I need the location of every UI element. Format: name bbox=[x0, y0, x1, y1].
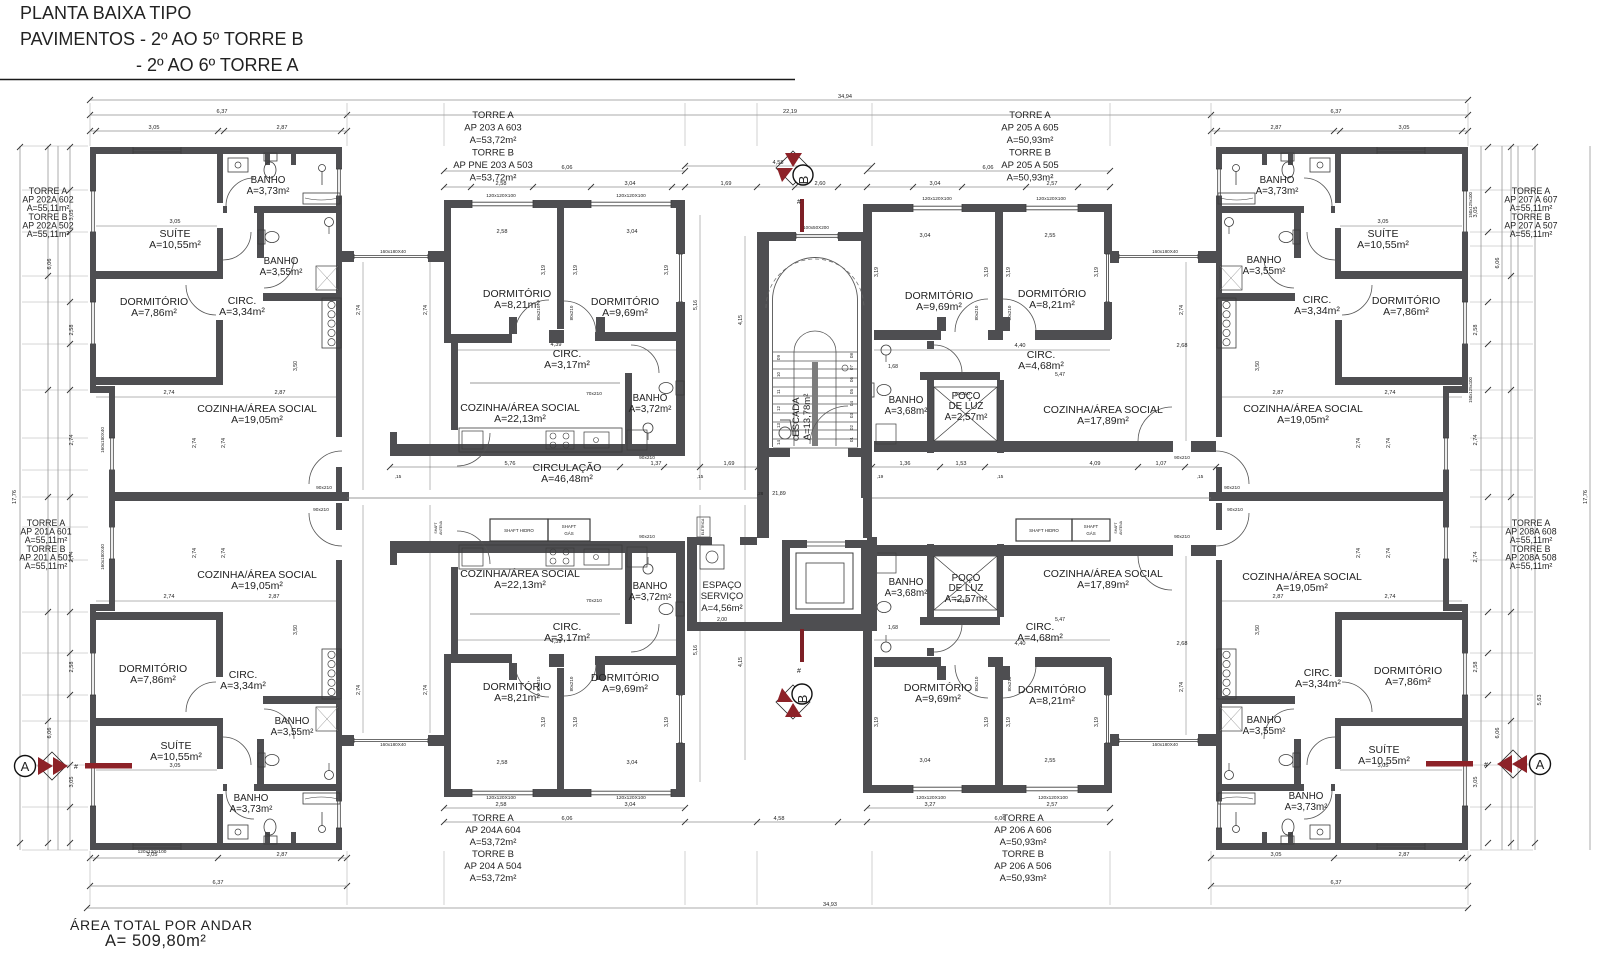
svg-text:3,50: 3,50 bbox=[1255, 625, 1261, 635]
svg-text:90x210: 90x210 bbox=[1227, 507, 1243, 513]
svg-text:2,68: 2,68 bbox=[1177, 343, 1188, 349]
svg-text:3,50: 3,50 bbox=[1255, 361, 1261, 371]
svg-text:A=10,55m²: A=10,55m² bbox=[150, 751, 202, 763]
svg-text:120x120X100: 120x120X100 bbox=[616, 193, 646, 199]
svg-text:6,06: 6,06 bbox=[1495, 258, 1501, 269]
svg-text:A: A bbox=[1536, 757, 1545, 772]
svg-text:2,00: 2,00 bbox=[717, 617, 727, 623]
svg-text:2,55: 2,55 bbox=[1045, 758, 1056, 764]
svg-text:4,09: 4,09 bbox=[1090, 461, 1101, 467]
svg-text:2,58: 2,58 bbox=[496, 802, 507, 808]
svg-text:10: 10 bbox=[776, 372, 781, 377]
svg-text:17,76: 17,76 bbox=[1583, 490, 1589, 504]
svg-text:120x120X100: 120x120X100 bbox=[922, 196, 952, 202]
svg-text:2,87: 2,87 bbox=[1273, 390, 1284, 396]
svg-text:A=9,69m²: A=9,69m² bbox=[602, 683, 648, 695]
svg-text:A=8,21m²: A=8,21m² bbox=[1029, 695, 1075, 707]
svg-text:3,04: 3,04 bbox=[920, 758, 931, 764]
svg-text:A=3,34m²: A=3,34m² bbox=[1294, 305, 1340, 317]
svg-text:#: # bbox=[797, 668, 801, 675]
svg-text:A=53,72m²: A=53,72m² bbox=[470, 837, 517, 848]
svg-text:3,05: 3,05 bbox=[149, 125, 160, 131]
svg-text:5,47: 5,47 bbox=[1055, 617, 1065, 623]
svg-text:2,87: 2,87 bbox=[269, 594, 280, 600]
svg-text:A=55,11m²: A=55,11m² bbox=[1510, 561, 1553, 571]
svg-text:3,19: 3,19 bbox=[1094, 267, 1100, 277]
svg-text:BANHO: BANHO bbox=[234, 793, 269, 804]
svg-text:BANHO: BANHO bbox=[251, 175, 286, 186]
svg-text:2,87: 2,87 bbox=[277, 125, 288, 131]
svg-text:SHAFT HIDRO: SHAFT HIDRO bbox=[1029, 528, 1059, 533]
svg-text:BANHO: BANHO bbox=[889, 577, 924, 588]
svg-text:2,74: 2,74 bbox=[1385, 390, 1396, 396]
svg-text:A=3,68m²: A=3,68m² bbox=[885, 406, 928, 417]
svg-text:34,94: 34,94 bbox=[838, 94, 852, 100]
svg-text:2,74: 2,74 bbox=[221, 438, 227, 448]
svg-text:3,19: 3,19 bbox=[541, 717, 547, 727]
svg-text:2,74: 2,74 bbox=[1356, 548, 1362, 558]
svg-text:A=19,05m²: A=19,05m² bbox=[231, 414, 283, 426]
svg-text:A=3,55m²: A=3,55m² bbox=[260, 267, 303, 278]
svg-text:AP 204A 604: AP 204A 604 bbox=[465, 825, 520, 836]
svg-text:11: 11 bbox=[776, 389, 781, 394]
svg-text:160x180X40: 160x180X40 bbox=[100, 427, 105, 453]
svg-text:PLANTA BAIXA TIPO: PLANTA BAIXA TIPO bbox=[20, 3, 191, 23]
svg-text:A=4,68m²: A=4,68m² bbox=[1017, 632, 1063, 644]
svg-text:2,74: 2,74 bbox=[1179, 305, 1185, 315]
svg-text:A=3,73m²: A=3,73m² bbox=[1285, 802, 1328, 813]
svg-text:70x210: 70x210 bbox=[586, 598, 602, 604]
svg-text:3,04: 3,04 bbox=[627, 229, 638, 235]
svg-text:A=17,89m²: A=17,89m² bbox=[1077, 415, 1129, 427]
svg-text:A=50,93m²: A=50,93m² bbox=[1000, 837, 1047, 848]
svg-text:5,16: 5,16 bbox=[693, 300, 699, 310]
svg-text:A=3,55m²: A=3,55m² bbox=[1243, 266, 1286, 277]
svg-text:A=19,05m²: A=19,05m² bbox=[1276, 582, 1328, 594]
svg-text:B: B bbox=[796, 176, 811, 185]
svg-text:A: A bbox=[21, 759, 30, 774]
svg-text:5,16: 5,16 bbox=[693, 645, 699, 655]
svg-text:A=7,86m²: A=7,86m² bbox=[1385, 676, 1431, 688]
svg-text:SHAFT HIDRO: SHAFT HIDRO bbox=[504, 528, 534, 533]
svg-text:TORRE A: TORRE A bbox=[472, 813, 514, 824]
svg-text:A=3,34m²: A=3,34m² bbox=[220, 680, 266, 692]
svg-text:A=22,13m²: A=22,13m² bbox=[494, 413, 546, 425]
svg-text:A=8,21m²: A=8,21m² bbox=[494, 692, 540, 704]
svg-text:3,50: 3,50 bbox=[293, 361, 299, 371]
svg-text:3,04: 3,04 bbox=[627, 760, 638, 766]
svg-text:90x210: 90x210 bbox=[316, 485, 332, 491]
svg-text:TORRE A: TORRE A bbox=[1002, 813, 1044, 824]
svg-text:SHAFT: SHAFT bbox=[434, 522, 438, 533]
svg-text:#: # bbox=[1484, 762, 1488, 769]
svg-text:2,87: 2,87 bbox=[1273, 594, 1284, 600]
svg-text:03: 03 bbox=[849, 413, 854, 418]
svg-text:2,74: 2,74 bbox=[192, 548, 198, 558]
svg-text:SHAFT: SHAFT bbox=[1084, 524, 1099, 529]
svg-text:07: 07 bbox=[849, 365, 854, 370]
svg-text:A=22,13m²: A=22,13m² bbox=[494, 579, 546, 591]
svg-text:SHAFT: SHAFT bbox=[1114, 522, 1118, 533]
svg-text:2,87: 2,87 bbox=[277, 852, 288, 858]
svg-text:90x210: 90x210 bbox=[1174, 455, 1190, 461]
svg-text:6,06: 6,06 bbox=[983, 165, 994, 171]
svg-text:3,04: 3,04 bbox=[625, 802, 636, 808]
svg-text:A=2,57m²: A=2,57m² bbox=[945, 594, 988, 605]
svg-text:1,37: 1,37 bbox=[651, 461, 662, 467]
svg-text:A=8,21m²: A=8,21m² bbox=[1029, 299, 1075, 311]
svg-text:2,74: 2,74 bbox=[1473, 552, 1479, 563]
svg-text:ANTENA: ANTENA bbox=[439, 520, 443, 534]
svg-text:3,19: 3,19 bbox=[1006, 267, 1012, 277]
svg-text:A=55,11m²: A=55,11m² bbox=[1510, 229, 1553, 239]
svg-text:22,19: 22,19 bbox=[783, 109, 797, 115]
svg-text:1,69: 1,69 bbox=[721, 181, 732, 187]
svg-text:AP 205 A 605: AP 205 A 605 bbox=[1001, 123, 1058, 134]
svg-text:AP 204 A 504: AP 204 A 504 bbox=[464, 861, 521, 872]
svg-text:90x210: 90x210 bbox=[639, 534, 655, 540]
svg-text:A=3,17m²: A=3,17m² bbox=[544, 359, 590, 371]
svg-text:5,76: 5,76 bbox=[505, 461, 516, 467]
svg-text:2,74: 2,74 bbox=[69, 435, 75, 446]
svg-text:1,68: 1,68 bbox=[888, 364, 898, 370]
svg-text:21,89: 21,89 bbox=[772, 491, 786, 497]
svg-text:- 2º AO 6º TORRE A: - 2º AO 6º TORRE A bbox=[136, 55, 299, 75]
svg-text:AP 206 A 606: AP 206 A 606 bbox=[994, 825, 1051, 836]
svg-text:1,36: 1,36 bbox=[900, 461, 911, 467]
svg-text:3,19: 3,19 bbox=[984, 717, 990, 727]
svg-text:TORRE B: TORRE B bbox=[1002, 849, 1044, 860]
svg-text:DE LUZ: DE LUZ bbox=[949, 583, 984, 594]
svg-text:100x50X200: 100x50X200 bbox=[803, 225, 829, 230]
svg-text:3,19: 3,19 bbox=[874, 267, 880, 277]
svg-text:A=3,72m²: A=3,72m² bbox=[629, 592, 672, 603]
svg-text:A=55,11m²: A=55,11m² bbox=[27, 229, 70, 239]
svg-text:TORRE A: TORRE A bbox=[1009, 110, 1051, 121]
svg-text:2,74: 2,74 bbox=[356, 685, 362, 695]
svg-text:2,87: 2,87 bbox=[1271, 125, 1282, 131]
svg-text:SHAFT: SHAFT bbox=[562, 524, 577, 529]
svg-text:05: 05 bbox=[849, 389, 854, 394]
svg-text:,28: ,28 bbox=[757, 491, 764, 496]
svg-text:3,19: 3,19 bbox=[1094, 717, 1100, 727]
svg-text:AP 205 A 505: AP 205 A 505 bbox=[1001, 160, 1058, 171]
svg-text:AP 206 A 506: AP 206 A 506 bbox=[994, 861, 1051, 872]
svg-text:3,04: 3,04 bbox=[625, 181, 636, 187]
svg-text:A=50,93m²: A=50,93m² bbox=[1007, 135, 1054, 146]
svg-text:3,19: 3,19 bbox=[541, 265, 547, 275]
svg-text:A=3,73m²: A=3,73m² bbox=[247, 186, 290, 197]
svg-text:120x120X100: 120x120X100 bbox=[1036, 196, 1066, 202]
svg-text:6,06: 6,06 bbox=[47, 259, 53, 270]
svg-text:#: # bbox=[74, 764, 78, 771]
svg-text:AP 203 A 603: AP 203 A 603 bbox=[464, 123, 521, 134]
svg-text:4,15: 4,15 bbox=[738, 657, 744, 667]
svg-text:70x210: 70x210 bbox=[586, 391, 602, 397]
svg-text:2,58: 2,58 bbox=[69, 325, 75, 336]
svg-text:BANHO: BANHO bbox=[633, 393, 668, 404]
svg-text:A=19,05m²: A=19,05m² bbox=[1277, 414, 1329, 426]
svg-text:SERVIÇO: SERVIÇO bbox=[701, 591, 744, 602]
svg-text:3,19: 3,19 bbox=[573, 717, 579, 727]
svg-text:2,57: 2,57 bbox=[1047, 802, 1058, 808]
svg-text:ESCADA: ESCADA bbox=[791, 397, 802, 437]
svg-text:1,53: 1,53 bbox=[956, 461, 967, 467]
svg-text:6,37: 6,37 bbox=[1331, 109, 1342, 115]
svg-text:3,05: 3,05 bbox=[1399, 125, 1410, 131]
svg-text:13: 13 bbox=[776, 423, 781, 428]
svg-text:A=2,57m²: A=2,57m² bbox=[945, 412, 988, 423]
svg-text:3,04: 3,04 bbox=[920, 233, 931, 239]
svg-text:3,19: 3,19 bbox=[664, 717, 670, 727]
svg-text:3,05: 3,05 bbox=[170, 219, 181, 225]
svg-text:6,37: 6,37 bbox=[1331, 880, 1342, 886]
svg-text:ELÉTRICA: ELÉTRICA bbox=[700, 518, 705, 535]
svg-text:1,07: 1,07 bbox=[1156, 461, 1167, 467]
svg-text:3,05: 3,05 bbox=[69, 777, 75, 788]
svg-text:2,74: 2,74 bbox=[1356, 438, 1362, 448]
svg-text:2,55: 2,55 bbox=[1045, 233, 1056, 239]
svg-text:160x180X40: 160x180X40 bbox=[380, 249, 406, 254]
svg-text:3,04: 3,04 bbox=[930, 181, 941, 187]
svg-text:2,74: 2,74 bbox=[1386, 548, 1392, 558]
svg-text:A=53,72m²: A=53,72m² bbox=[470, 173, 517, 184]
svg-text:6,06: 6,06 bbox=[562, 165, 573, 171]
svg-text:4,58: 4,58 bbox=[774, 816, 785, 822]
svg-text:5,47: 5,47 bbox=[1055, 372, 1065, 378]
svg-text:2,74: 2,74 bbox=[1386, 438, 1392, 448]
svg-text:80x210: 80x210 bbox=[974, 676, 979, 691]
svg-text:BANHO: BANHO bbox=[275, 716, 310, 727]
svg-text:GÁS: GÁS bbox=[1086, 531, 1095, 536]
svg-text:6,37: 6,37 bbox=[217, 109, 228, 115]
svg-text:A=3,68m²: A=3,68m² bbox=[885, 588, 928, 599]
svg-text:160x180X40: 160x180X40 bbox=[1152, 742, 1178, 747]
svg-text:TORRE B: TORRE B bbox=[472, 849, 514, 860]
svg-text:2,74: 2,74 bbox=[192, 438, 198, 448]
svg-text:02: 02 bbox=[849, 425, 854, 430]
svg-text:DE LUZ: DE LUZ bbox=[949, 401, 984, 412]
svg-text:A=19,05m²: A=19,05m² bbox=[231, 580, 283, 592]
svg-text:150x125x100: 150x125x100 bbox=[1468, 376, 1473, 402]
svg-text:2,74: 2,74 bbox=[1385, 594, 1396, 600]
svg-text:3,05: 3,05 bbox=[1473, 777, 1479, 788]
svg-text:A=55,11m²: A=55,11m² bbox=[25, 561, 68, 571]
svg-text:,15: ,15 bbox=[697, 474, 704, 480]
svg-text:1,69: 1,69 bbox=[724, 461, 735, 467]
svg-text:3,19: 3,19 bbox=[573, 265, 579, 275]
svg-text:2,74: 2,74 bbox=[164, 594, 175, 600]
svg-text:4,40: 4,40 bbox=[1015, 343, 1026, 349]
svg-text:2,74: 2,74 bbox=[221, 548, 227, 558]
svg-text:GÁS: GÁS bbox=[564, 531, 573, 536]
svg-text:A= 509,80m²: A= 509,80m² bbox=[105, 932, 207, 950]
svg-text:BANHO: BANHO bbox=[1289, 791, 1324, 802]
svg-text:2,60: 2,60 bbox=[815, 181, 826, 187]
svg-text:A=17,89m²: A=17,89m² bbox=[1077, 579, 1129, 591]
svg-text:2,58: 2,58 bbox=[69, 662, 75, 673]
svg-text:A=3,17m²: A=3,17m² bbox=[544, 632, 590, 644]
svg-text:14: 14 bbox=[776, 440, 781, 445]
svg-text:BANHO: BANHO bbox=[1247, 255, 1282, 266]
svg-text:,15: ,15 bbox=[1197, 474, 1204, 480]
svg-text:A=46,48m²: A=46,48m² bbox=[541, 473, 593, 485]
svg-text:4,58: 4,58 bbox=[773, 160, 784, 166]
svg-text:08: 08 bbox=[849, 353, 854, 358]
svg-text:,15: ,15 bbox=[997, 474, 1004, 480]
svg-text:06: 06 bbox=[849, 377, 854, 382]
svg-text:6,06: 6,06 bbox=[562, 816, 573, 822]
svg-text:3,50: 3,50 bbox=[293, 625, 299, 635]
svg-text:A=7,86m²: A=7,86m² bbox=[1383, 306, 1429, 318]
svg-text:150x125x100: 150x125x100 bbox=[1468, 191, 1473, 217]
svg-text:,19: ,19 bbox=[877, 474, 884, 480]
svg-text:A=53,72m²: A=53,72m² bbox=[470, 873, 517, 884]
svg-text:PAVIMENTOS - 2º AO 5º TORRE B: PAVIMENTOS - 2º AO 5º TORRE B bbox=[20, 29, 304, 49]
svg-text:3,19: 3,19 bbox=[984, 267, 990, 277]
svg-text:A=53,72m²: A=53,72m² bbox=[470, 135, 517, 146]
svg-text:2,87: 2,87 bbox=[275, 390, 286, 396]
svg-text:120x120X100: 120x120X100 bbox=[486, 795, 516, 801]
svg-text:B: B bbox=[795, 695, 810, 704]
svg-text:120x120X100: 120x120X100 bbox=[916, 795, 946, 801]
svg-text:3,05: 3,05 bbox=[1473, 207, 1479, 218]
svg-text:01: 01 bbox=[849, 437, 854, 442]
svg-text:09: 09 bbox=[776, 355, 781, 360]
svg-text:6,06: 6,06 bbox=[47, 728, 53, 739]
svg-text:A=4,68m²: A=4,68m² bbox=[1018, 360, 1064, 372]
svg-text:2,74: 2,74 bbox=[164, 390, 175, 396]
svg-text:2,68: 2,68 bbox=[1177, 641, 1188, 647]
svg-text:A=10,55m²: A=10,55m² bbox=[149, 239, 201, 251]
svg-text:TORRE B: TORRE B bbox=[1009, 148, 1051, 159]
svg-text:2,58: 2,58 bbox=[497, 229, 508, 235]
svg-text:3,05: 3,05 bbox=[170, 763, 181, 769]
svg-text:BANHO: BANHO bbox=[633, 581, 668, 592]
svg-text:6,37: 6,37 bbox=[213, 880, 224, 886]
svg-text:TORRE A: TORRE A bbox=[472, 110, 514, 121]
svg-text:80x210: 80x210 bbox=[569, 676, 574, 691]
svg-text:3,05: 3,05 bbox=[1271, 852, 1282, 858]
svg-text:120x120X100: 120x120X100 bbox=[486, 193, 516, 199]
svg-text:3,05: 3,05 bbox=[1378, 219, 1389, 225]
svg-text:2,74: 2,74 bbox=[423, 685, 429, 695]
svg-text:ANTENA: ANTENA bbox=[1119, 520, 1123, 534]
svg-text:A=3,55m²: A=3,55m² bbox=[271, 727, 314, 738]
svg-text:04: 04 bbox=[849, 401, 854, 406]
svg-text:160x180X40: 160x180X40 bbox=[100, 544, 105, 570]
svg-text:BANHO: BANHO bbox=[1247, 715, 1282, 726]
svg-text:90x210: 90x210 bbox=[1224, 485, 1240, 491]
svg-text:2,87: 2,87 bbox=[1399, 852, 1410, 858]
svg-text:A=9,69m²: A=9,69m² bbox=[602, 307, 648, 319]
svg-text:A=3,34m²: A=3,34m² bbox=[1295, 678, 1341, 690]
svg-text:A=3,34m²: A=3,34m² bbox=[219, 306, 265, 318]
svg-text:2,58: 2,58 bbox=[1473, 325, 1479, 336]
svg-text:3,19: 3,19 bbox=[874, 717, 880, 727]
svg-text:A=7,86m²: A=7,86m² bbox=[131, 307, 177, 319]
svg-text:2,74: 2,74 bbox=[423, 305, 429, 315]
svg-text:A=3,73m²: A=3,73m² bbox=[1256, 186, 1299, 197]
svg-text:2,58: 2,58 bbox=[1473, 662, 1479, 673]
svg-text:A=3,55m²: A=3,55m² bbox=[1243, 726, 1286, 737]
svg-text:3,05: 3,05 bbox=[69, 210, 75, 221]
svg-text:BANHO: BANHO bbox=[1260, 175, 1295, 186]
svg-text:AP PNE 203 A 503: AP PNE 203 A 503 bbox=[453, 160, 533, 171]
svg-text:2,58: 2,58 bbox=[497, 760, 508, 766]
svg-text:A=9,69m²: A=9,69m² bbox=[916, 301, 962, 313]
svg-text:80x210: 80x210 bbox=[569, 305, 574, 320]
svg-text:120x120X100: 120x120X100 bbox=[616, 795, 646, 801]
svg-text:80x210: 80x210 bbox=[974, 305, 979, 320]
svg-text:160x180X40: 160x180X40 bbox=[380, 742, 406, 747]
svg-text:TORRE B: TORRE B bbox=[472, 148, 514, 159]
svg-text:120x120X100: 120x120X100 bbox=[1038, 795, 1068, 801]
svg-text:A=4,56m²: A=4,56m² bbox=[701, 603, 742, 614]
svg-text:90x210: 90x210 bbox=[313, 507, 329, 513]
svg-text:3,19: 3,19 bbox=[1006, 717, 1012, 727]
svg-text:A=8,21m²: A=8,21m² bbox=[494, 299, 540, 311]
svg-text:A=13,78m²: A=13,78m² bbox=[802, 394, 813, 441]
svg-text:34,93: 34,93 bbox=[823, 902, 837, 908]
svg-text:4,15: 4,15 bbox=[738, 315, 744, 325]
svg-text:2,74: 2,74 bbox=[1473, 435, 1479, 446]
svg-text:A=3,72m²: A=3,72m² bbox=[629, 404, 672, 415]
svg-text:A=10,55m²: A=10,55m² bbox=[1358, 755, 1410, 767]
svg-text:A=50,93m²: A=50,93m² bbox=[1000, 873, 1047, 884]
svg-text:3,19: 3,19 bbox=[664, 265, 670, 275]
svg-text:A=9,69m²: A=9,69m² bbox=[915, 693, 961, 705]
svg-text:90x210: 90x210 bbox=[1174, 534, 1190, 540]
svg-text:1,68: 1,68 bbox=[888, 625, 898, 631]
svg-text:A=3,73m²: A=3,73m² bbox=[230, 804, 273, 815]
svg-text:2,74: 2,74 bbox=[1179, 682, 1185, 692]
svg-text:17,76: 17,76 bbox=[12, 490, 18, 504]
svg-text:A=7,86m²: A=7,86m² bbox=[130, 674, 176, 686]
svg-text:A=10,55m²: A=10,55m² bbox=[1357, 239, 1409, 251]
svg-text:12: 12 bbox=[776, 406, 781, 411]
svg-text:2,74: 2,74 bbox=[356, 305, 362, 315]
svg-text:ÁREA TOTAL POR ANDAR: ÁREA TOTAL POR ANDAR bbox=[70, 917, 253, 933]
svg-text:ESPAÇO: ESPAÇO bbox=[703, 580, 742, 591]
svg-text:3,27: 3,27 bbox=[925, 802, 936, 808]
svg-text:5,63: 5,63 bbox=[1537, 695, 1543, 706]
svg-text:A=50,93m²: A=50,93m² bbox=[1007, 173, 1054, 184]
svg-text:,15: ,15 bbox=[395, 474, 402, 480]
svg-text:BANHO: BANHO bbox=[889, 395, 924, 406]
svg-text:#: # bbox=[797, 199, 801, 206]
svg-text:6,06: 6,06 bbox=[1495, 728, 1501, 739]
svg-text:BANHO: BANHO bbox=[264, 256, 299, 267]
svg-text:160x180X40: 160x180X40 bbox=[1152, 249, 1178, 254]
